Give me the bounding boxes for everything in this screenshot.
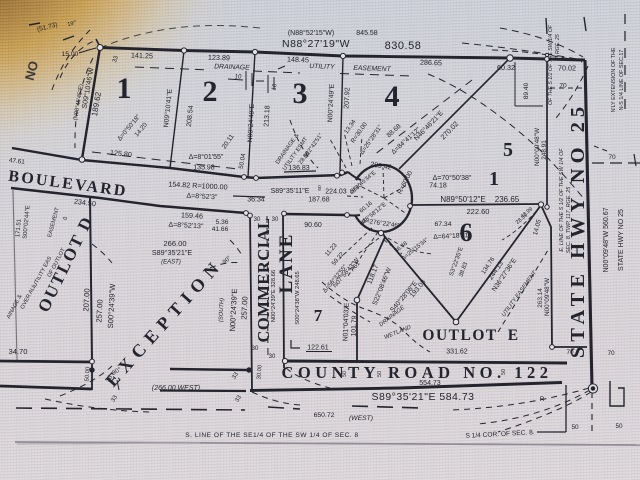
svg-text:30.00: 30.00 (256, 365, 263, 380)
svg-text:N00°24'39"E 328.66: N00°24'39"E 328.66 (271, 270, 277, 322)
svg-text:74.18: 74.18 (429, 183, 447, 190)
svg-text:171.51: 171.51 (15, 218, 23, 237)
svg-text:60.32: 60.32 (497, 63, 515, 72)
svg-text:88.68: 88.68 (386, 123, 403, 139)
svg-text:N00°09'48"W: N00°09'48"W (533, 127, 541, 166)
svg-text:50: 50 (615, 423, 623, 430)
svg-text:14.05: 14.05 (532, 218, 543, 236)
svg-text:263.14: 263.14 (537, 288, 544, 308)
svg-text:224.03: 224.03 (325, 189, 347, 196)
svg-text:33: 33 (231, 371, 240, 380)
svg-text:10: 10 (271, 83, 279, 92)
svg-text:89.40: 89.40 (523, 82, 530, 99)
svg-text:36.34: 36.34 (247, 197, 265, 204)
svg-text:(N88°52'15"W): (N88°52'15"W) (288, 29, 334, 37)
svg-text:222.60: 222.60 (467, 207, 490, 216)
svg-text:70: 70 (607, 350, 615, 357)
svg-text:248.91: 248.91 (541, 140, 548, 160)
svg-text:N00°24'49"E: N00°24'49"E (246, 103, 256, 142)
svg-text:554.73: 554.73 (419, 380, 441, 387)
svg-text:2: 2 (203, 75, 218, 108)
svg-text:50: 50 (342, 371, 348, 377)
svg-text:207.92: 207.92 (343, 87, 351, 109)
svg-text:S89°35'11"E: S89°35'11"E (271, 187, 310, 195)
svg-text:(WEST): (WEST) (349, 415, 373, 422)
svg-text:33: 33 (110, 394, 119, 403)
svg-text:154.82 R=1000.00: 154.82 R=1000.00 (168, 179, 228, 191)
svg-text:50: 50 (377, 371, 383, 377)
svg-text:257.00: 257.00 (239, 296, 249, 320)
svg-text:135.98: 135.98 (193, 165, 215, 172)
svg-text:UTILITY: UTILITY (309, 63, 335, 71)
svg-text:COUNTY ROAD NO. 122: COUNTY ROAD NO. 122 (282, 363, 553, 382)
svg-text:LANE: LANE (276, 233, 297, 294)
svg-text:R: R (540, 396, 545, 403)
svg-text:136.83: 136.83 (288, 165, 310, 172)
svg-text:WETLAND: WETLAND (383, 325, 412, 341)
svg-text:(266.00 WEST): (266.00 WEST) (152, 385, 200, 392)
svg-text:122.61: 122.61 (307, 345, 329, 352)
svg-text:70: 70 (559, 83, 567, 90)
svg-text:650.72: 650.72 (314, 412, 335, 419)
svg-text:187.68: 187.68 (308, 197, 330, 204)
svg-text:Δ=70°50'38": Δ=70°50'38" (433, 174, 472, 182)
svg-text:N88°27'19"W: N88°27'19"W (282, 38, 350, 50)
svg-text:OUTLOT E: OUTLOT E (422, 327, 519, 344)
svg-text:50.00: 50.00 (84, 367, 91, 382)
svg-text:30: 30 (254, 217, 261, 223)
svg-text:159.46: 159.46 (181, 210, 203, 220)
svg-text:41.66: 41.66 (212, 226, 229, 233)
svg-text:20.11: 20.11 (221, 133, 236, 150)
svg-text:30: 30 (269, 354, 276, 360)
svg-text:70: 70 (608, 154, 616, 161)
svg-text:33: 33 (234, 394, 243, 403)
svg-text:90°: 90° (222, 255, 233, 266)
svg-text:NO: NO (22, 59, 42, 82)
svg-text:N09°10'41"E: N09°10'41"E (162, 88, 174, 128)
svg-text:E. LINE OF THE S 1/2 OF THE SW: E. LINE OF THE S 1/2 OF THE SW 1/4 OF (559, 148, 565, 252)
svg-text:EASEMENT: EASEMENT (47, 206, 61, 238)
svg-text:270.02: 270.02 (438, 119, 460, 141)
svg-text:S22°42'51": S22°42'51" (303, 133, 324, 160)
svg-text:4: 4 (385, 80, 400, 113)
svg-text:N-S 1/4 LINE OF SEC.17: N-S 1/4 LINE OF SEC.17 (619, 50, 625, 111)
svg-text:1: 1 (117, 72, 132, 105)
svg-text:N89°50'12"E: N89°50'12"E (440, 195, 485, 204)
svg-text:101.79: 101.79 (351, 315, 359, 336)
svg-text:N00°09'48"W 560.67: N00°09'48"W 560.67 (602, 207, 610, 272)
svg-text:65.90: 65.90 (349, 183, 364, 197)
svg-text:Δ=8°01'55": Δ=8°01'55" (189, 153, 224, 161)
svg-text:OF THE S 1/2 OF THE SW 1/4 OF: OF THE S 1/2 OF THE SW 1/4 OF (548, 24, 554, 105)
svg-text:SEC. 8, TWP. 117, RGE. 25: SEC. 8, TWP. 117, RGE. 25 (566, 186, 572, 254)
svg-text:331.62: 331.62 (446, 349, 468, 356)
svg-text:67.34: 67.34 (434, 221, 451, 228)
svg-text:S00°24'38"W 248.65: S00°24'38"W 248.65 (295, 271, 301, 325)
svg-text:10: 10 (235, 75, 242, 81)
svg-text:Δ=8°52'3": Δ=8°52'3" (186, 192, 218, 202)
svg-text:(SOUTH): (SOUTH) (218, 298, 225, 323)
svg-text:15.00: 15.00 (62, 51, 79, 58)
svg-text:50: 50 (571, 424, 579, 431)
svg-text:30: 30 (272, 217, 279, 223)
svg-text:257.00: 257.00 (94, 299, 104, 323)
svg-text:148.45: 148.45 (287, 55, 309, 65)
svg-text:N00°24'49"E: N00°24'49"E (326, 83, 336, 122)
svg-text:125.80: 125.80 (110, 148, 133, 159)
svg-text:1: 1 (489, 168, 499, 190)
svg-text:207.00: 207.00 (81, 288, 91, 312)
svg-text:5: 5 (503, 139, 513, 161)
svg-text:S89°35'21"E: S89°35'21"E (152, 248, 193, 257)
svg-text:N'LY EXTENSION OF THE: N'LY EXTENSION OF THE (611, 47, 617, 112)
svg-text:141.25: 141.25 (131, 51, 153, 61)
svg-text:STATE HWY NO 25: STATE HWY NO 25 (618, 209, 625, 271)
svg-text:7: 7 (314, 306, 323, 325)
svg-text:33: 33 (112, 55, 120, 64)
svg-text:70.02: 70.02 (558, 64, 576, 73)
svg-text:236.65: 236.65 (495, 195, 520, 204)
svg-text:S89°35'21"E 584.73: S89°35'21"E 584.73 (371, 391, 474, 403)
svg-text:Δ=8°52'13": Δ=8°52'13" (168, 221, 204, 231)
svg-text:845.58: 845.58 (356, 30, 378, 37)
svg-text:S. LINE OF THE SE1/4 OF THE SW: S. LINE OF THE SE1/4 OF THE SW 1/4 OF SE… (185, 432, 358, 439)
svg-text:S00°24'39"W: S00°24'39"W (106, 283, 117, 329)
svg-text:3: 3 (293, 77, 308, 110)
svg-text:286.65: 286.65 (420, 58, 442, 68)
svg-text:0: 0 (63, 216, 70, 221)
svg-text:50: 50 (317, 185, 323, 191)
svg-text:123.89: 123.89 (208, 53, 230, 63)
svg-text:N00°24'39"E: N00°24'39"E (228, 288, 239, 331)
svg-text:50: 50 (501, 369, 507, 375)
svg-text:S 1/4 COR. OF SEC. 8.: S 1/4 COR. OF SEC. 8. (465, 429, 535, 440)
svg-text:208.54: 208.54 (186, 105, 195, 127)
svg-text:DRAINAGE: DRAINAGE (214, 63, 250, 71)
svg-text:30: 30 (252, 346, 259, 352)
svg-text:S00°02'44"E: S00°02'44"E (23, 205, 32, 239)
svg-text:234.50: 234.50 (73, 197, 96, 209)
svg-text:90.60: 90.60 (304, 222, 322, 229)
svg-text:7, RGE. 25: 7, RGE. 25 (555, 34, 561, 60)
svg-text:213.18: 213.18 (263, 105, 271, 127)
svg-text:38.83: 38.83 (458, 261, 469, 278)
svg-text:(EAST): (EAST) (161, 260, 181, 266)
svg-text:34.70: 34.70 (8, 347, 27, 356)
svg-text:19°′: 19°′ (67, 20, 78, 28)
svg-text:5.36: 5.36 (216, 219, 229, 226)
svg-text:266.00: 266.00 (163, 239, 186, 248)
svg-text:830.58: 830.58 (385, 40, 422, 52)
svg-text:N00°09'48"W: N00°09'48"W (543, 277, 551, 316)
svg-text:N01°04'03"E: N01°04'03"E (341, 302, 350, 341)
svg-text:EASEMENT: EASEMENT (353, 65, 391, 73)
svg-text:50.04: 50.04 (238, 152, 248, 169)
svg-text:47.61: 47.61 (8, 157, 25, 166)
svg-text:70: 70 (566, 349, 574, 356)
